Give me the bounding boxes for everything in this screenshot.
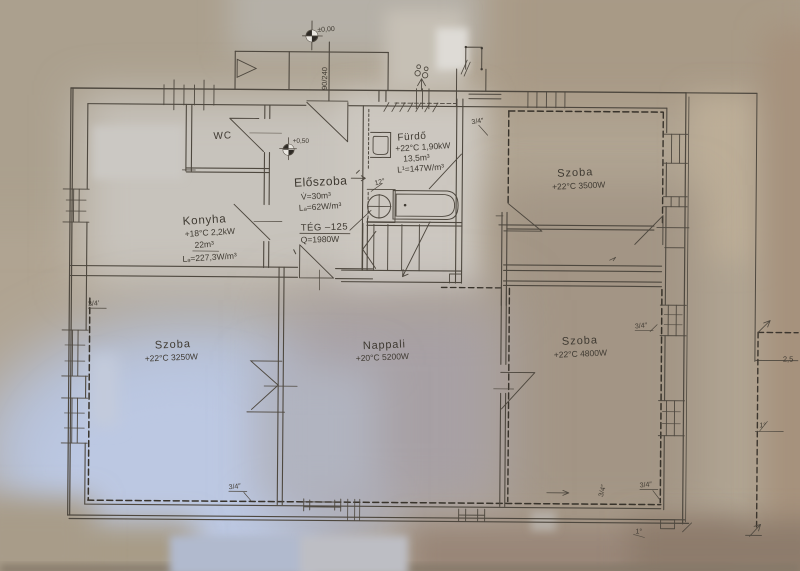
svg-text:22m³: 22m³ [194,239,214,250]
svg-text:WC: WC [213,130,232,142]
svg-text:2,5: 2,5 [783,355,794,364]
svg-text:1°: 1° [759,421,766,429]
svg-text:+0,50: +0,50 [293,138,310,145]
svg-text:Q=1980W: Q=1980W [301,234,340,245]
svg-text:3/4″: 3/4″ [639,481,652,489]
svg-text:Szoba: Szoba [562,334,599,348]
svg-text:V̇=30m³: V̇=30m³ [301,190,332,202]
svg-text:Szoba: Szoba [557,166,594,180]
svg-text:3/4″: 3/4″ [228,483,241,491]
svg-text:TÉG –125: TÉG –125 [301,222,349,234]
svg-text:1°: 1° [636,527,643,535]
svg-text:3/4″: 3/4″ [635,322,648,330]
svg-text:Szoba: Szoba [155,338,192,352]
svg-text:90/240: 90/240 [320,67,329,90]
svg-text:3/4′: 3/4′ [88,300,100,308]
svg-text:Előszoba: Előszoba [294,173,348,189]
svg-text:±0,00: ±0,00 [317,26,335,34]
svg-text:Nappali: Nappali [363,338,406,352]
